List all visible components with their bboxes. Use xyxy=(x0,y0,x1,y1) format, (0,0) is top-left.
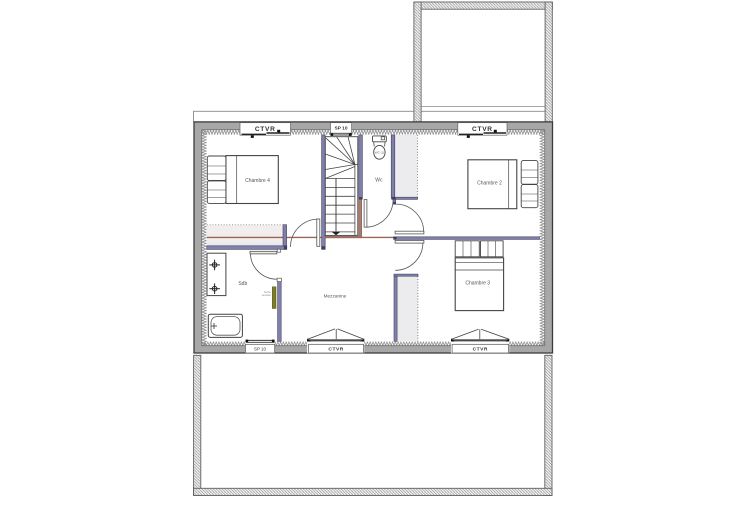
svg-text:CTVR: CTVR xyxy=(328,347,343,353)
svg-text:SP 10: SP 10 xyxy=(335,126,348,132)
svg-text:CTVR: CTVR xyxy=(255,126,276,133)
svg-text:serviette: serviette xyxy=(262,294,272,297)
svg-text:Chambre 3: Chambre 3 xyxy=(465,281,490,287)
svg-text:WC (1): WC (1) xyxy=(375,151,385,155)
svg-text:Mezzanine: Mezzanine xyxy=(324,294,347,299)
svg-text:Wc: Wc xyxy=(375,178,383,184)
svg-text:CTVR: CTVR xyxy=(473,347,488,353)
svg-text:Chambre 4: Chambre 4 xyxy=(245,178,270,184)
svg-text:Chambre 2: Chambre 2 xyxy=(477,181,502,187)
svg-text:Sdb: Sdb xyxy=(238,281,247,287)
svg-text:SP 10: SP 10 xyxy=(254,346,266,351)
svg-text:CTVR: CTVR xyxy=(472,126,493,133)
